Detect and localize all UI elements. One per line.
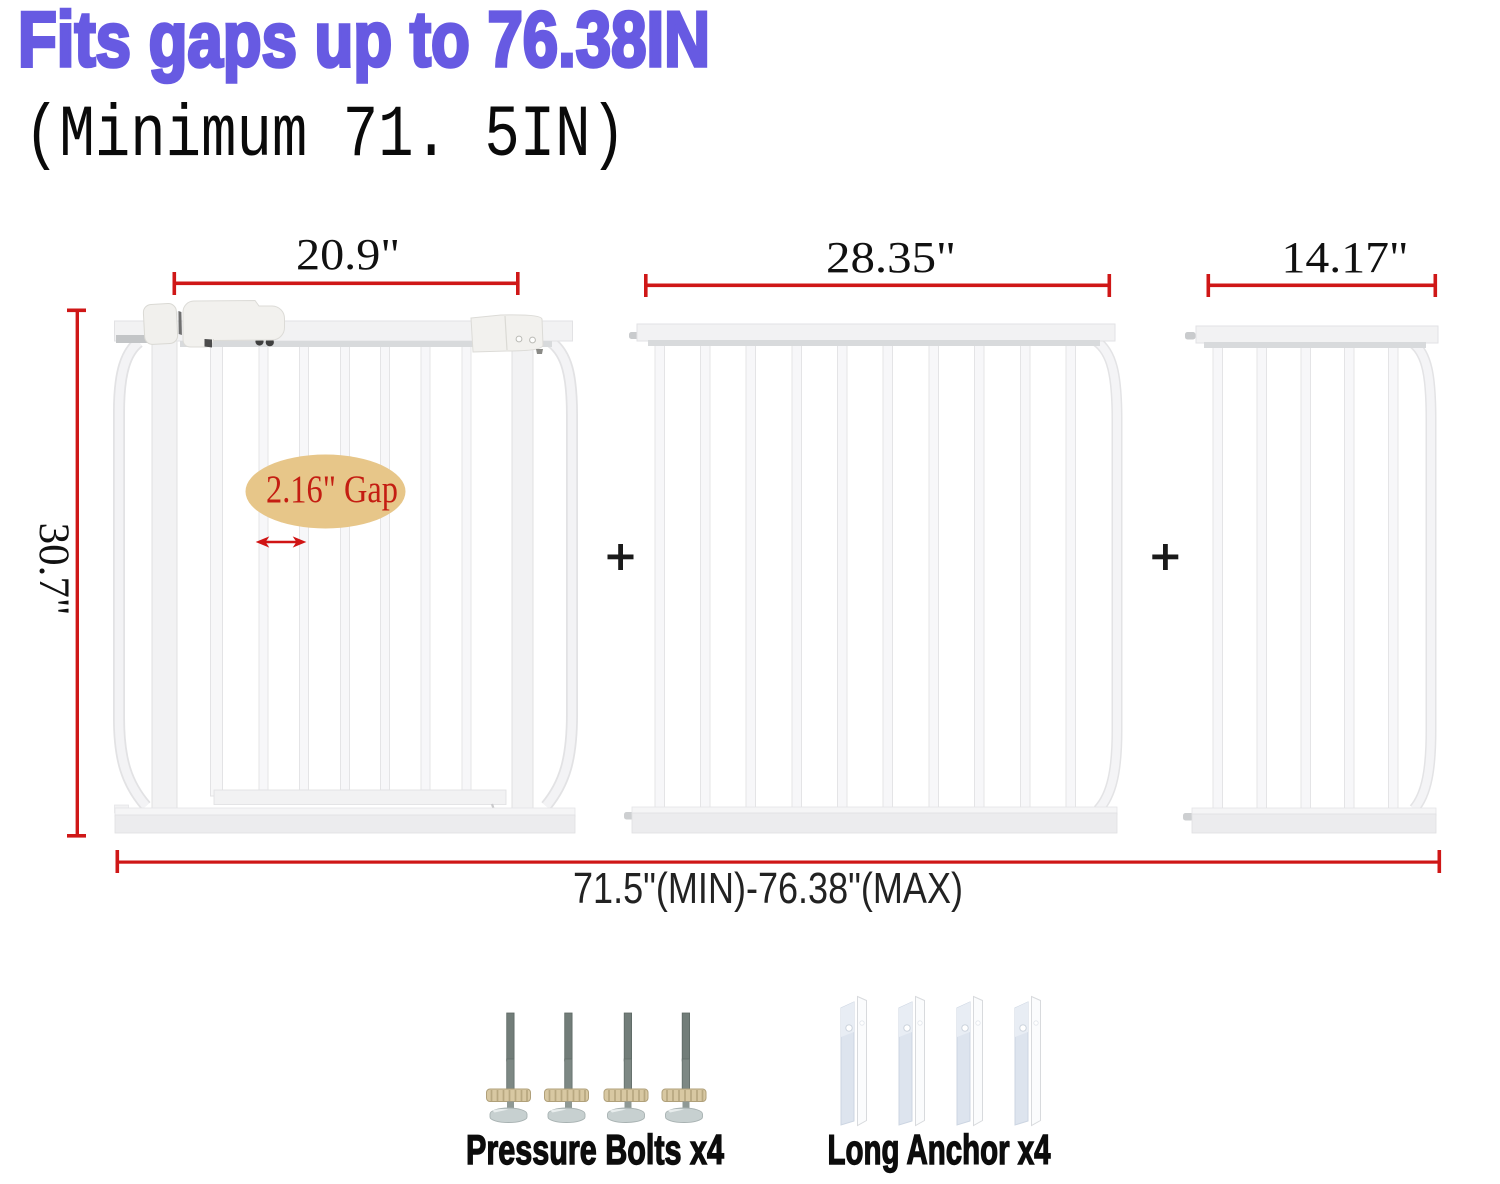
svg-text:2.16" Gap: 2.16" Gap [266, 468, 398, 511]
svg-text:(Minimum 71. 5IN): (Minimum 71. 5IN) [24, 95, 626, 177]
svg-text:20.9": 20.9" [296, 230, 400, 279]
svg-text:Pressure Bolts x4: Pressure Bolts x4 [466, 1126, 724, 1173]
svg-text:Fits gaps up to 76.38IN: Fits gaps up to 76.38IN [18, 0, 710, 83]
svg-text:30.7": 30.7" [30, 523, 77, 616]
svg-text:71.5"(MIN)-76.38"(MAX): 71.5"(MIN)-76.38"(MAX) [573, 864, 963, 913]
svg-text:Long Anchor x4: Long Anchor x4 [828, 1126, 1051, 1173]
svg-text:14.17": 14.17" [1282, 233, 1409, 282]
svg-text:28.35": 28.35" [826, 233, 956, 282]
